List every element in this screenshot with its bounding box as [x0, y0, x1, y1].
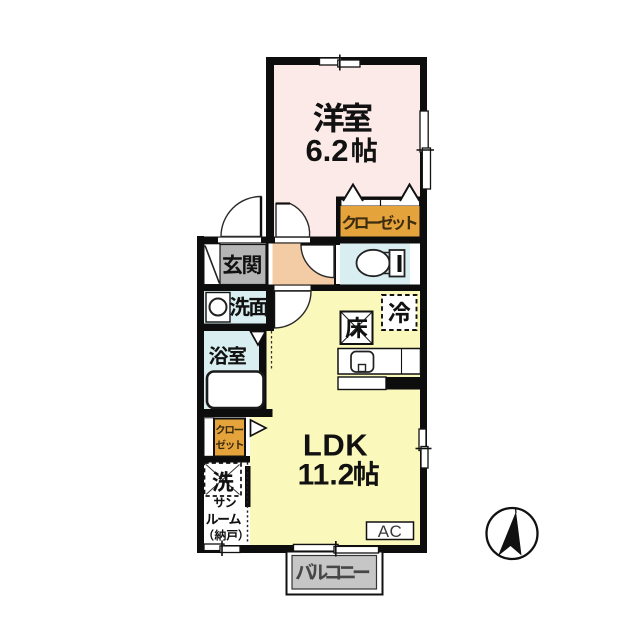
svg-text:11.2: 11.2: [298, 459, 355, 492]
svg-text:6.2: 6.2: [305, 133, 348, 168]
svg-text:AC: AC: [378, 522, 403, 541]
svg-text:LDK: LDK: [303, 428, 368, 463]
